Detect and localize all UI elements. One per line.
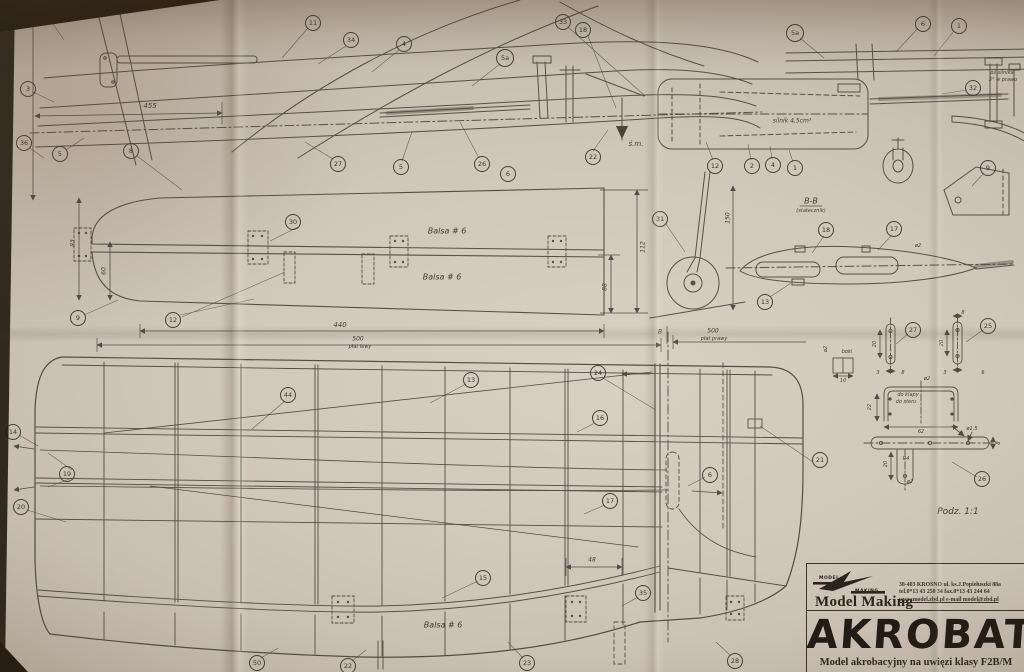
part-callout: 27 xyxy=(330,156,346,172)
part-callout: 25 xyxy=(980,318,996,334)
part-callout: 1 xyxy=(787,160,803,176)
part-callout: 4 xyxy=(765,157,781,173)
plan-annotation: 8 xyxy=(901,370,904,376)
address-block: 38-403 KROSNO ul. ks.J.Popiełuszki 88a t… xyxy=(899,582,1024,604)
part-callout: 12 xyxy=(707,158,723,174)
plan-annotation: silnik 4,5cm³ xyxy=(773,118,811,125)
plan-annotation: (statecznik) xyxy=(796,208,825,214)
plan-annotation: 62 xyxy=(918,429,924,435)
part-callout: 18 xyxy=(575,22,591,38)
plan-annotation: 83 xyxy=(70,239,77,247)
dimension-lines xyxy=(33,8,993,576)
plan-annotation: 8 xyxy=(996,441,1002,444)
cg-arrow-icon xyxy=(616,126,628,139)
part-callout: 34 xyxy=(343,32,359,48)
plan-photo: 6a33658113445a3318275266225a613212241931… xyxy=(0,0,1024,672)
plan-annotation: ø2 xyxy=(915,243,921,249)
part-callout: 35 xyxy=(635,585,651,601)
plan-annotation: 10 xyxy=(840,378,846,384)
plan-annotation: ø2 xyxy=(823,346,829,352)
plan-annotation: 20 xyxy=(939,340,945,346)
part-callout: 1 xyxy=(951,18,967,34)
plan-annotation: R4 xyxy=(903,456,910,462)
part-callout: 3 xyxy=(20,81,36,97)
plan-annotation: Podz. 1:1 xyxy=(937,507,979,517)
part-callout: 12 xyxy=(165,312,181,328)
plan-annotation: 3 xyxy=(943,370,946,376)
part-callout: 22 xyxy=(340,658,356,672)
part-callout: 5a xyxy=(786,24,804,42)
part-callout: 17 xyxy=(602,493,618,509)
part-callout: 26 xyxy=(974,471,990,487)
plan-annotation: oś silnika xyxy=(990,70,1013,76)
address-line-2: tel.0*13 43 250 34 fax.0*13 43 244 64 xyxy=(899,589,1024,596)
plan-annotation: 22 xyxy=(867,404,873,410)
plan-annotation: 60 xyxy=(101,267,108,275)
part-callout: 33 xyxy=(555,14,571,30)
plan-annotation: 440 xyxy=(333,321,346,329)
plan-annotation: 6 xyxy=(981,370,984,376)
part-callout: 15 xyxy=(475,570,491,586)
part-callout: 6 xyxy=(500,166,516,182)
plan-annotation: 48 xyxy=(588,557,596,564)
part-callout: 18 xyxy=(818,222,834,238)
nose-top-view xyxy=(658,44,1024,215)
plan-annotation: 3 xyxy=(876,370,879,376)
part-callout: 19 xyxy=(59,466,75,482)
part-callout: 22 xyxy=(585,149,601,165)
plan-annotation: do steru xyxy=(896,399,917,405)
part-callout: 31 xyxy=(652,211,668,227)
plan-annotation: 88 xyxy=(602,283,609,291)
plan-annotation: boki xyxy=(842,349,853,355)
plan-annotation: 500 xyxy=(352,336,363,343)
plan-annotation: 8 xyxy=(961,310,964,316)
plan-annotation: 455 xyxy=(143,102,156,110)
part-callout: 28 xyxy=(727,653,743,669)
plan-subtitle: Model akrobacyjny na uwięzi klasy F2B/M xyxy=(807,657,1024,668)
part-callout: 2 xyxy=(744,158,760,174)
part-callout: 30 xyxy=(285,214,301,230)
plan-annotation: ø2 xyxy=(907,479,913,485)
address-line-1: 38-403 KROSNO ul. ks.J.Popiełuszki 88a xyxy=(899,582,1024,589)
plan-annotation: 3° w prawo xyxy=(989,77,1017,83)
stabilizer-plan xyxy=(74,188,604,315)
plan-annotation: B-B xyxy=(804,197,818,206)
brand-word-top: MODEL xyxy=(819,576,839,581)
part-callout: 5a xyxy=(496,49,514,67)
part-callout: 6 xyxy=(915,16,931,32)
part-callout: 13 xyxy=(463,372,479,388)
plan-annotation: płat lewy xyxy=(349,344,372,350)
plan-annotation: 112 xyxy=(640,241,647,252)
part-callout: 6 xyxy=(702,467,718,483)
plan-annotation: Balsa # 6 xyxy=(423,273,462,282)
plan-annotation: 20 xyxy=(872,341,878,347)
address-line-3: www.model.zbd.pl e-mail model@zbd.pl xyxy=(899,597,1024,604)
part-callout: 26 xyxy=(474,156,490,172)
plan-annotation: 150 xyxy=(725,212,732,223)
part-callout: 32 xyxy=(965,80,981,96)
part-callout: 20 xyxy=(13,499,29,515)
part-callout: 8 xyxy=(123,143,139,159)
part-callout: 17 xyxy=(886,221,902,237)
part-callout: 5 xyxy=(393,159,409,175)
part-callout: 9 xyxy=(980,160,996,176)
plan-annotation: ś.m. xyxy=(629,140,644,148)
fuselage-side-view xyxy=(30,0,1020,165)
part-callout: 36 xyxy=(16,135,32,151)
part-callout: 44 xyxy=(280,387,296,403)
plan-annotation: do klapy xyxy=(897,392,918,398)
model-making-logo: MODEL MAKING xyxy=(811,567,907,595)
plan-annotation: Balsa # 6 xyxy=(428,227,467,236)
part-callout: 21 xyxy=(812,452,828,468)
plan-annotation: płat prawy xyxy=(701,336,728,342)
plan-annotation: Balsa # 6 xyxy=(424,621,463,630)
plan-annotation: B xyxy=(658,329,662,336)
plan-title: AKROBAT xyxy=(805,612,1024,658)
part-callout: 6a xyxy=(33,2,51,20)
plan-annotation: 20 xyxy=(883,461,889,467)
wing-plan xyxy=(14,332,803,669)
part-callout: 4 xyxy=(396,36,412,52)
part-callout: 11 xyxy=(305,15,321,31)
wheel-and-airfoil-section xyxy=(650,172,1014,318)
plan-annotation: ø1,5 xyxy=(966,426,977,432)
part-callout: 13 xyxy=(757,294,773,310)
part-callout: 9 xyxy=(70,310,86,326)
part-callout: 5 xyxy=(52,146,68,162)
part-callout: 14 xyxy=(5,424,21,440)
part-callout: 27 xyxy=(905,322,921,338)
part-callout: 16 xyxy=(592,410,608,426)
part-callout: 23 xyxy=(519,655,535,671)
plan-annotation: ø2 xyxy=(924,376,930,382)
plan-annotation: 500 xyxy=(707,328,718,335)
title-block: MODEL MAKING Model Making 38-403 KROSNO … xyxy=(806,563,1024,672)
part-callout: 24 xyxy=(590,365,606,381)
part-callout: 50 xyxy=(249,655,265,671)
